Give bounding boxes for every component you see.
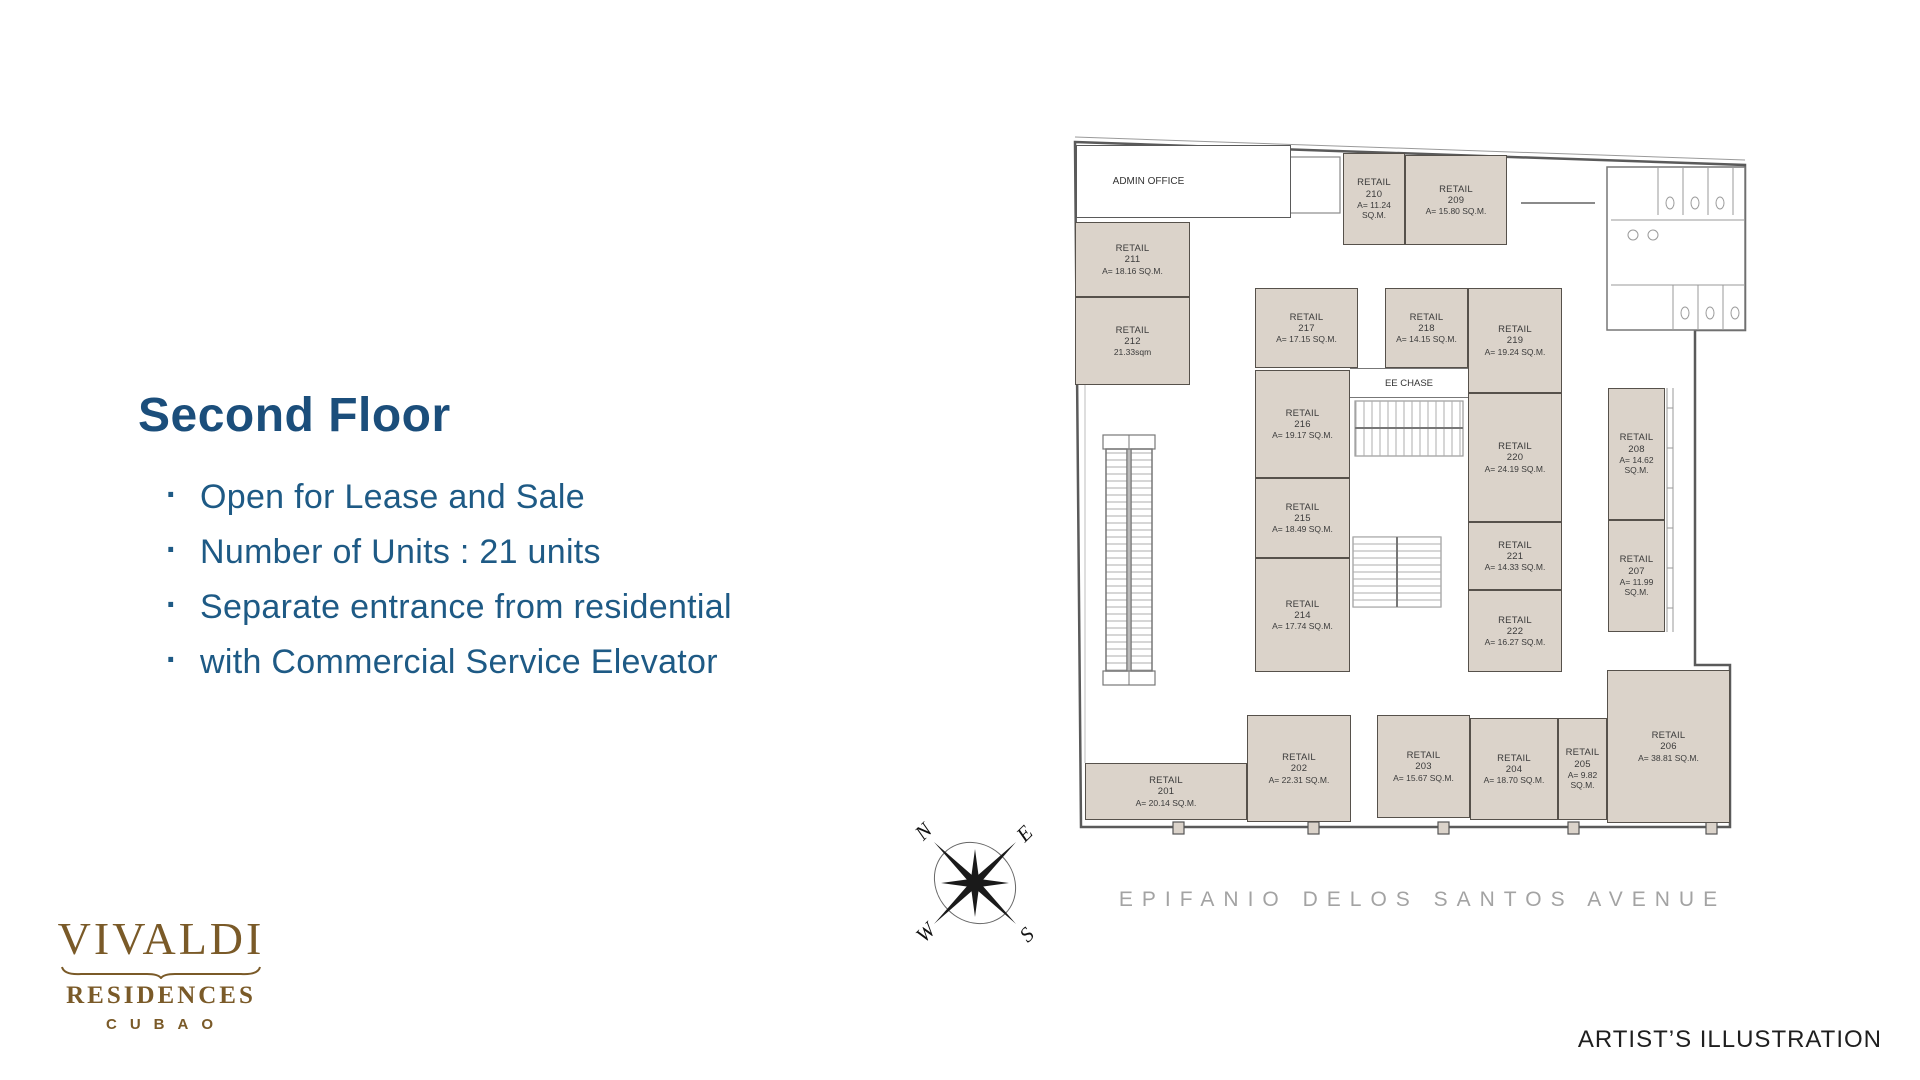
retail-unit-201-ra: A= 20.14 SQ.M. [1136,798,1197,808]
retail-unit-208-rl: RETAIL [1620,432,1654,443]
retail-unit-208-rn: 208 [1628,444,1644,455]
retail-unit-212-ra: 21.33sqm [1114,347,1151,357]
retail-unit-220: RETAIL220A= 24.19 SQ.M. [1468,393,1562,522]
vivaldi-logo: VIVALDI RESIDENCES CUBAO [55,912,267,1033]
retail-unit-212: RETAIL21221.33sqm [1075,297,1190,385]
retail-unit-209-ra: A= 15.80 SQ.M. [1426,206,1487,216]
bullet-item: Number of Units : 21 units [152,533,732,572]
compass-south: S [1014,922,1039,947]
retail-unit-205: RETAIL205A= 9.82 SQ.M. [1558,718,1607,820]
retail-unit-222-rl: RETAIL [1498,615,1532,626]
retail-unit-204-ra: A= 18.70 SQ.M. [1484,775,1545,785]
retail-unit-218-rl: RETAIL [1410,312,1444,323]
retail-unit-206: RETAIL206A= 38.81 SQ.M. [1607,670,1730,823]
compass-north: N [909,817,937,845]
brand-name: VIVALDI [55,912,267,965]
retail-unit-220-ra: A= 24.19 SQ.M. [1485,464,1546,474]
retail-unit-205-rn: 205 [1574,759,1590,770]
retail-unit-210-rn: 210 [1366,189,1382,200]
brand-residences: RESIDENCES [55,982,267,1010]
retail-unit-204-rn: 204 [1506,764,1522,775]
retail-unit-211-rn: 211 [1125,254,1141,265]
ee-chase-label: EE CHASE [1350,368,1468,398]
retail-unit-212-rn: 212 [1124,336,1140,347]
retail-unit-212-rl: RETAIL [1116,325,1150,336]
retail-unit-208-ra: A= 14.62 SQ.M. [1610,455,1663,475]
floor-plan: RETAIL201A= 20.14 SQ.M.RETAIL202A= 22.31… [1073,135,1748,850]
logo-brace-icon [59,965,263,979]
retail-unit-205-ra: A= 9.82 SQ.M. [1560,770,1605,790]
page-title: Second Floor [138,388,451,443]
retail-unit-208: RETAIL208A= 14.62 SQ.M. [1608,388,1665,520]
retail-unit-203-ra: A= 15.67 SQ.M. [1393,773,1454,783]
retail-unit-203-rn: 203 [1415,761,1431,772]
retail-unit-218-ra: A= 14.15 SQ.M. [1396,334,1457,344]
retail-unit-202-rn: 202 [1291,763,1307,774]
retail-unit-204: RETAIL204A= 18.70 SQ.M. [1470,718,1558,820]
retail-unit-210-ra: A= 11.24 SQ.M. [1345,200,1403,220]
retail-unit-214-rl: RETAIL [1286,599,1320,610]
retail-unit-214-ra: A= 17.74 SQ.M. [1272,621,1333,631]
brand-cubao: CUBAO [55,1016,267,1033]
retail-unit-221: RETAIL221A= 14.33 SQ.M. [1468,522,1562,590]
retail-unit-211: RETAIL211A= 18.16 SQ.M. [1075,222,1190,297]
bullet-item: with Commercial Service Elevator [152,643,732,682]
bullet-item: Open for Lease and Sale [152,478,732,517]
retail-unit-203-rl: RETAIL [1407,750,1441,761]
retail-unit-216: RETAIL216A= 19.17 SQ.M. [1255,370,1350,478]
retail-unit-207-ra: A= 11.99 SQ.M. [1610,577,1663,597]
retail-unit-222: RETAIL222A= 16.27 SQ.M. [1468,590,1562,672]
plan-rooms: RETAIL201A= 20.14 SQ.M.RETAIL202A= 22.31… [1073,135,1748,850]
retail-unit-219-rn: 219 [1507,335,1523,346]
retail-unit-203: RETAIL203A= 15.67 SQ.M. [1377,715,1470,818]
retail-unit-202: RETAIL202A= 22.31 SQ.M. [1247,715,1351,822]
retail-unit-215-rn: 215 [1294,513,1310,524]
retail-unit-216-rn: 216 [1294,419,1310,430]
retail-unit-222-rn: 222 [1507,626,1523,637]
retail-unit-201-rn: 201 [1158,786,1174,797]
retail-unit-202-ra: A= 22.31 SQ.M. [1269,775,1330,785]
retail-unit-210-rl: RETAIL [1357,177,1391,188]
retail-unit-209-rl: RETAIL [1439,184,1473,195]
retail-unit-221-ra: A= 14.33 SQ.M. [1485,562,1546,572]
retail-unit-217-rn: 217 [1298,323,1314,334]
retail-unit-222-ra: A= 16.27 SQ.M. [1485,637,1546,647]
street-label: EPIFANIO DELOS SANTOS AVENUE [1100,888,1745,912]
compass-rose-icon: N E S W [890,798,1060,968]
retail-unit-207-rl: RETAIL [1620,554,1654,565]
retail-unit-201-rl: RETAIL [1149,775,1183,786]
retail-unit-220-rn: 220 [1507,452,1523,463]
retail-unit-221-rn: 221 [1507,551,1523,562]
retail-unit-219-rl: RETAIL [1498,324,1532,335]
retail-unit-201: RETAIL201A= 20.14 SQ.M. [1085,763,1247,820]
retail-unit-206-rn: 206 [1660,741,1676,752]
retail-unit-215-rl: RETAIL [1286,502,1320,513]
retail-unit-216-rl: RETAIL [1286,408,1320,419]
retail-unit-214-rn: 214 [1294,610,1310,621]
retail-unit-220-rl: RETAIL [1498,441,1532,452]
retail-unit-209: RETAIL209A= 15.80 SQ.M. [1405,155,1507,245]
retail-unit-216-ra: A= 19.17 SQ.M. [1272,430,1333,440]
retail-unit-218-rn: 218 [1418,323,1434,334]
admin-office-room: ADMIN OFFICE [1076,145,1291,218]
retail-unit-214: RETAIL214A= 17.74 SQ.M. [1255,558,1350,672]
retail-unit-215-ra: A= 18.49 SQ.M. [1272,524,1333,534]
retail-unit-217-rl: RETAIL [1290,312,1324,323]
retail-unit-205-rl: RETAIL [1566,747,1600,758]
retail-unit-209-rn: 209 [1448,195,1464,206]
retail-unit-219-ra: A= 19.24 SQ.M. [1485,347,1546,357]
retail-unit-207-rn: 207 [1628,566,1644,577]
retail-unit-217: RETAIL217A= 17.15 SQ.M. [1255,288,1358,368]
retail-unit-207: RETAIL207A= 11.99 SQ.M. [1608,520,1665,632]
artist-illustration-note: ARTIST’S ILLUSTRATION [1578,1026,1882,1054]
retail-unit-211-ra: A= 18.16 SQ.M. [1102,266,1163,276]
retail-unit-202-rl: RETAIL [1282,752,1316,763]
retail-unit-211-rl: RETAIL [1116,243,1150,254]
retail-unit-210: RETAIL210A= 11.24 SQ.M. [1343,153,1405,245]
retail-unit-219: RETAIL219A= 19.24 SQ.M. [1468,288,1562,393]
retail-unit-206-ra: A= 38.81 SQ.M. [1638,753,1699,763]
retail-unit-206-rl: RETAIL [1652,730,1686,741]
retail-unit-218: RETAIL218A= 14.15 SQ.M. [1385,288,1468,368]
retail-unit-215: RETAIL215A= 18.49 SQ.M. [1255,478,1350,558]
bullet-list: Open for Lease and Sale Number of Units … [152,478,732,698]
retail-unit-221-rl: RETAIL [1498,540,1532,551]
retail-unit-204-rl: RETAIL [1497,753,1531,764]
retail-unit-217-ra: A= 17.15 SQ.M. [1276,334,1337,344]
bullet-item: Separate entrance from residential [152,588,732,627]
